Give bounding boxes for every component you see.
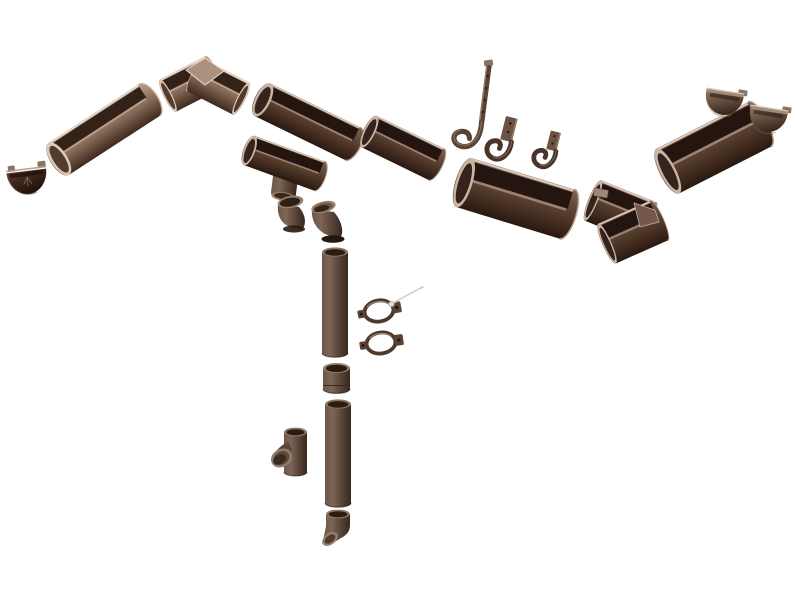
downpipe-coupler: downpipe coupler socket	[323, 363, 350, 393]
downpipe-upper: downpipe (upper length)	[322, 247, 348, 357]
scene-canvas: gutter end cap (left, with embossed logo…	[0, 0, 796, 600]
gutter-system-photo: gutter end cap (left, with embossed logo…	[0, 0, 796, 600]
downpipe-lower: downpipe (lower length)	[325, 399, 351, 507]
